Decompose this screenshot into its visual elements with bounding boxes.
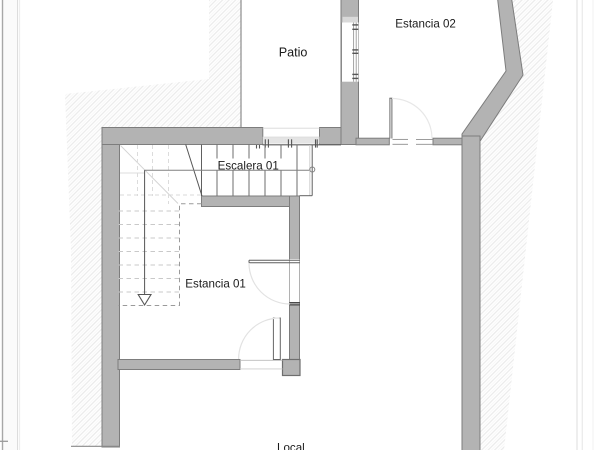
- svg-text:Estancia 01: Estancia 01: [185, 277, 246, 290]
- svg-text:Estancia 02: Estancia 02: [395, 18, 456, 31]
- svg-text:Patio: Patio: [279, 45, 308, 59]
- svg-text:Escalera 01: Escalera 01: [218, 159, 279, 172]
- svg-text:Local: Local: [277, 442, 305, 450]
